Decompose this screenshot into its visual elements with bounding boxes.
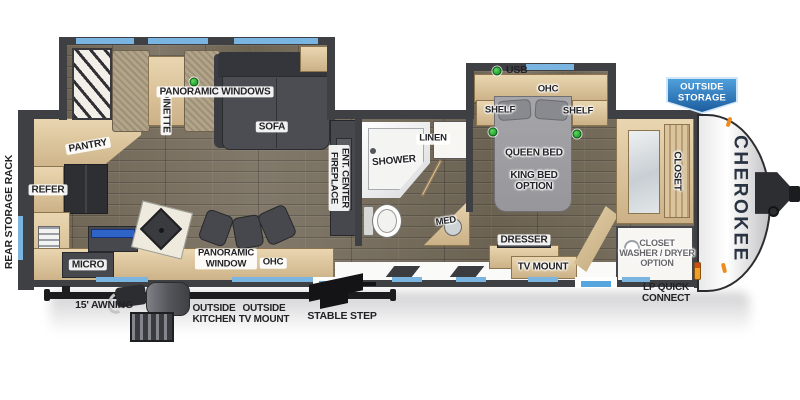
living-slide-wall-right <box>327 37 335 120</box>
dinette-bench <box>112 50 150 132</box>
queen-bed-label: QUEEN BED <box>505 147 563 158</box>
rear-wall <box>18 110 34 290</box>
panoramic-window-label: PANORAMIC WINDOW <box>195 248 257 269</box>
island-faucet <box>159 228 164 233</box>
rv-floorplan-diagram: REAR STORAGE RACK PANTRY REFER MICRO PAN… <box>0 0 800 400</box>
outside-kitchen-pot <box>146 282 190 316</box>
ohc-bedroom-label: OHC <box>538 85 559 96</box>
panoramic-window-glass <box>232 277 316 282</box>
sofa-label: SOFA <box>256 121 288 132</box>
rear-storage-rack-label: REAR STORAGE RACK <box>4 155 16 269</box>
slide-window <box>148 38 208 44</box>
toilet-seat <box>377 209 397 233</box>
bath-wall-left <box>355 116 362 246</box>
living-slide-wall-left <box>59 37 67 120</box>
awning-end-cap <box>390 289 396 301</box>
tongue-jack <box>768 206 779 217</box>
bottom-window <box>528 277 558 282</box>
top-wall <box>327 110 474 119</box>
bath-wall-right <box>466 116 473 212</box>
usb-dot <box>190 78 199 87</box>
refer-label: REFER <box>29 184 68 195</box>
bedroom-slide-window <box>526 64 574 70</box>
sofa-cushion-seam <box>276 78 277 148</box>
awning-end-cap <box>44 289 50 301</box>
micro-label: MICRO <box>69 259 107 270</box>
panoramic-windows-label: PANORAMIC WINDOWS <box>157 86 274 97</box>
rear-window <box>18 216 23 260</box>
shower-head <box>370 148 376 154</box>
shelf-left-label: SHELF <box>485 106 515 117</box>
outside-tv-mount-label: OUTSIDE TV MOUNT <box>239 303 290 325</box>
bottom-window <box>96 277 148 282</box>
bunk-ladder-panel <box>72 48 112 120</box>
linen-label: LINEN <box>416 134 450 145</box>
shelf-right-label: SHELF <box>563 107 593 118</box>
bedroom-slide-wall-left <box>466 63 474 119</box>
outside-griddle <box>130 312 174 342</box>
awning-arm <box>62 286 70 294</box>
refrigerator-doors <box>64 164 108 214</box>
cooktop <box>91 229 135 238</box>
tv-mount-label: TV MOUNT <box>518 261 569 272</box>
closet-label: CLOSET <box>671 151 682 190</box>
ent-center-fireplace-label: ENT. CENTER FIREPLACE <box>328 145 349 211</box>
stable-step-label: STABLE STEP <box>307 311 376 323</box>
dresser-label: DRESSER <box>498 234 551 245</box>
bottom-window <box>456 277 486 282</box>
king-bed-option-label: KING BED OPTION <box>510 170 557 192</box>
top-wall <box>608 110 702 119</box>
entry-step <box>581 281 611 287</box>
cherokee-brand-label: CHEROKEE <box>729 135 750 263</box>
slide-end-cabinet <box>300 46 328 72</box>
usb-dot <box>573 130 582 139</box>
outside-kitchen-label: OUTSIDE KITCHEN <box>192 303 235 325</box>
usb-dot <box>489 128 498 137</box>
slide-window <box>234 38 318 44</box>
awning-label: 15' AWNING <box>75 300 133 312</box>
washer-dryer-option-label: CLOSET WASHER / DRYER OPTION <box>619 238 694 268</box>
lp-quick-connect-label: LP QUICK CONNECT <box>642 282 690 304</box>
usb-dot <box>493 67 502 76</box>
lp-quick-connect-fitting <box>694 262 701 280</box>
outside-storage-label: OUTSIDE STORAGE <box>678 82 726 103</box>
usb-legend-label: USB <box>506 65 528 77</box>
bottom-window <box>392 277 422 282</box>
ohc-kitchen-label: OHC <box>260 258 287 269</box>
hitch-coupler <box>789 186 800 202</box>
slide-window <box>76 38 134 44</box>
wardrobe-mirror <box>628 130 660 214</box>
stable-step-rail <box>352 282 376 286</box>
